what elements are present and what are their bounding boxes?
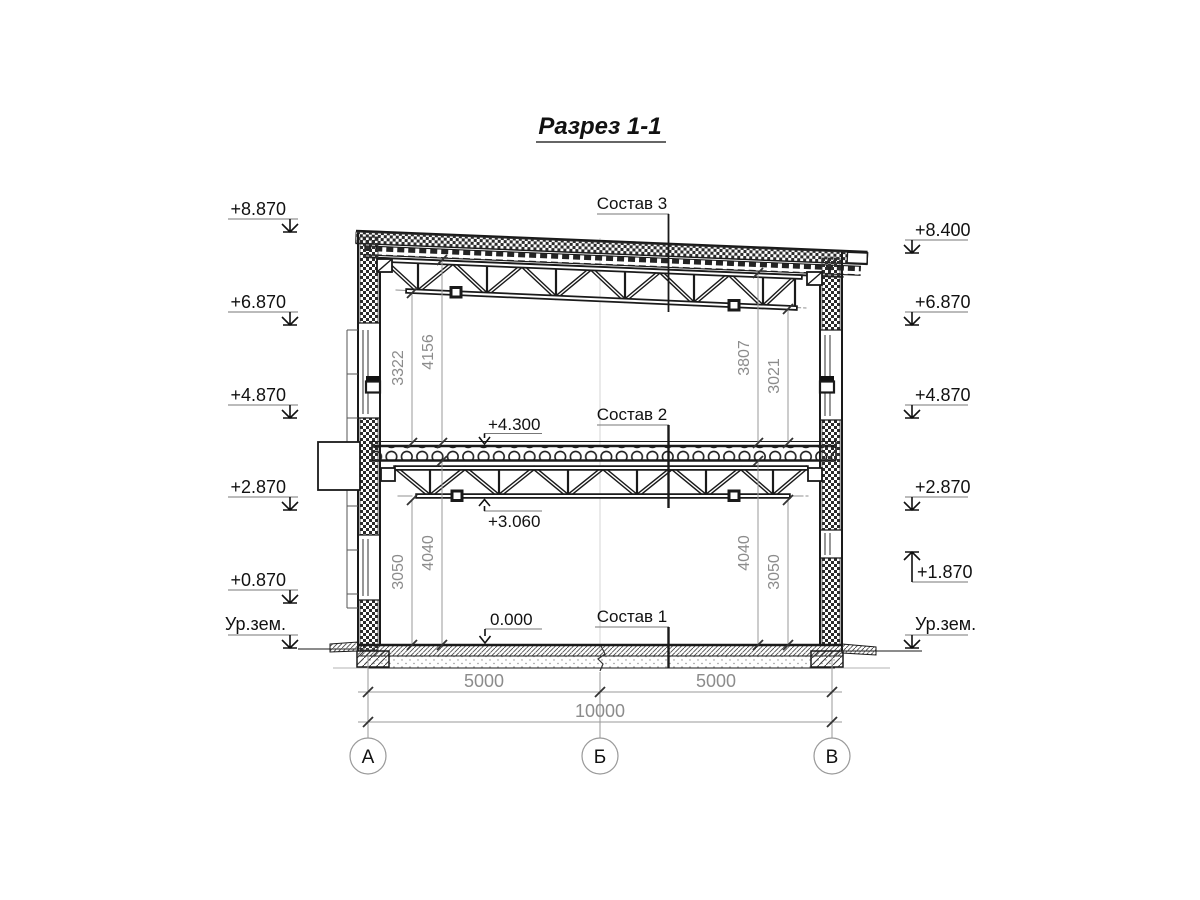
elevation-mark: +0.870 <box>228 570 298 603</box>
elevation-mark: +6.870 <box>904 292 971 325</box>
axis-bubbles: А Б В <box>350 738 850 774</box>
dim-upper-right-2: 3021 <box>766 358 783 394</box>
spot-level-truss2: +3.060 <box>479 500 542 532</box>
elevation-label: +1.870 <box>917 562 973 582</box>
elevation-label: +0.870 <box>230 570 286 590</box>
hollow-core-slab <box>372 446 836 461</box>
roof-truss-connection-left <box>451 288 461 298</box>
dim-lower-left-2: 4040 <box>420 535 437 571</box>
elevation-mark: +4.870 <box>228 385 298 418</box>
spot-level-floor2: +4.300 <box>479 415 542 444</box>
left-wall-fixture-box <box>366 382 380 393</box>
dim-span-2: 5000 <box>696 671 736 691</box>
section-drawing-page: +4.300 +3.060 0.000 Состав 3 Состав 2 Со… <box>0 0 1200 900</box>
axis-label-v: В <box>826 747 839 768</box>
elevation-label: +2.870 <box>915 477 971 497</box>
callout-roof-label: Состав 3 <box>597 194 668 213</box>
ground-level-mark: Ур.зем. <box>904 614 976 648</box>
elevation-mark: +8.870 <box>228 199 298 232</box>
dim-lower-right-2: 3050 <box>766 554 783 590</box>
elevation-mark: +2.870 <box>228 477 298 510</box>
level-floor2-label: +4.300 <box>488 415 540 434</box>
dim-upper-left-2: 4156 <box>420 334 437 370</box>
elevation-label: Ур.зем. <box>915 614 976 634</box>
foundation-right <box>811 651 843 667</box>
elevation-label: +4.870 <box>230 385 286 405</box>
elevation-label: +6.870 <box>230 292 286 312</box>
floor1-topping-layer <box>358 646 842 656</box>
elevation-label: Ур.зем. <box>225 614 286 634</box>
callout-floor2-label: Состав 2 <box>597 405 668 424</box>
right-wall-fixture-box <box>820 382 834 393</box>
level-truss2-label: +3.060 <box>488 512 540 531</box>
callout-floor1-label: Состав 1 <box>597 607 668 626</box>
ground-floor <box>298 642 922 671</box>
dim-upper-right-1: 3807 <box>736 340 753 376</box>
elevation-mark: +4.870 <box>904 385 971 418</box>
floor2-truss-connection-right <box>729 491 739 501</box>
dim-span-1: 5000 <box>464 671 504 691</box>
drawing-title: Разрез 1-1 <box>536 113 666 142</box>
roof-truss-connection-right <box>729 301 739 311</box>
dim-lower-right-1: 4040 <box>736 535 753 571</box>
elevation-mark: +2.870 <box>904 477 971 510</box>
elevation-mark: +8.400 <box>904 220 971 253</box>
blind-area-right <box>842 644 876 655</box>
dim-lower-left-1: 3050 <box>390 554 407 590</box>
title-text: Разрез 1-1 <box>538 113 661 140</box>
elevation-label: +8.870 <box>230 199 286 219</box>
elevation-marks-left: +8.870 +6.870 +4.870 +2.870 +0.870 Ур.зе… <box>225 199 298 648</box>
roof-fascia-box <box>847 252 867 263</box>
elevation-label: +6.870 <box>915 292 971 312</box>
spot-level-floor1: 0.000 <box>480 610 543 643</box>
elevation-label: +2.870 <box>230 477 286 497</box>
floor2-truss-connection-left <box>452 491 462 501</box>
blind-area-left <box>330 642 358 652</box>
axis-label-b: Б <box>594 747 606 768</box>
section-drawing-canvas: +4.300 +3.060 0.000 Состав 3 Состав 2 Со… <box>0 0 1200 900</box>
elevation-label: +8.400 <box>915 220 971 240</box>
floor2-truss-bearing-right <box>808 468 822 481</box>
level-floor1-label: 0.000 <box>490 610 533 629</box>
dim-upper-left-1: 3322 <box>390 350 407 386</box>
floor2-truss <box>396 468 808 501</box>
left-wall-console <box>318 442 360 490</box>
elevation-label: +4.870 <box>915 385 971 405</box>
dim-total: 10000 <box>575 701 625 721</box>
axis-label-a: А <box>362 747 375 768</box>
elevation-mark-up: +1.870 <box>904 552 973 582</box>
floor2-truss-bearing-left <box>381 468 395 481</box>
ground-level-mark: Ур.зем. <box>225 614 298 648</box>
elevation-marks-right: +8.400 +6.870 +4.870 +2.870 +1.870 Ур.зе… <box>904 220 976 648</box>
foundation-left <box>357 651 389 667</box>
elevation-mark: +6.870 <box>228 292 298 325</box>
